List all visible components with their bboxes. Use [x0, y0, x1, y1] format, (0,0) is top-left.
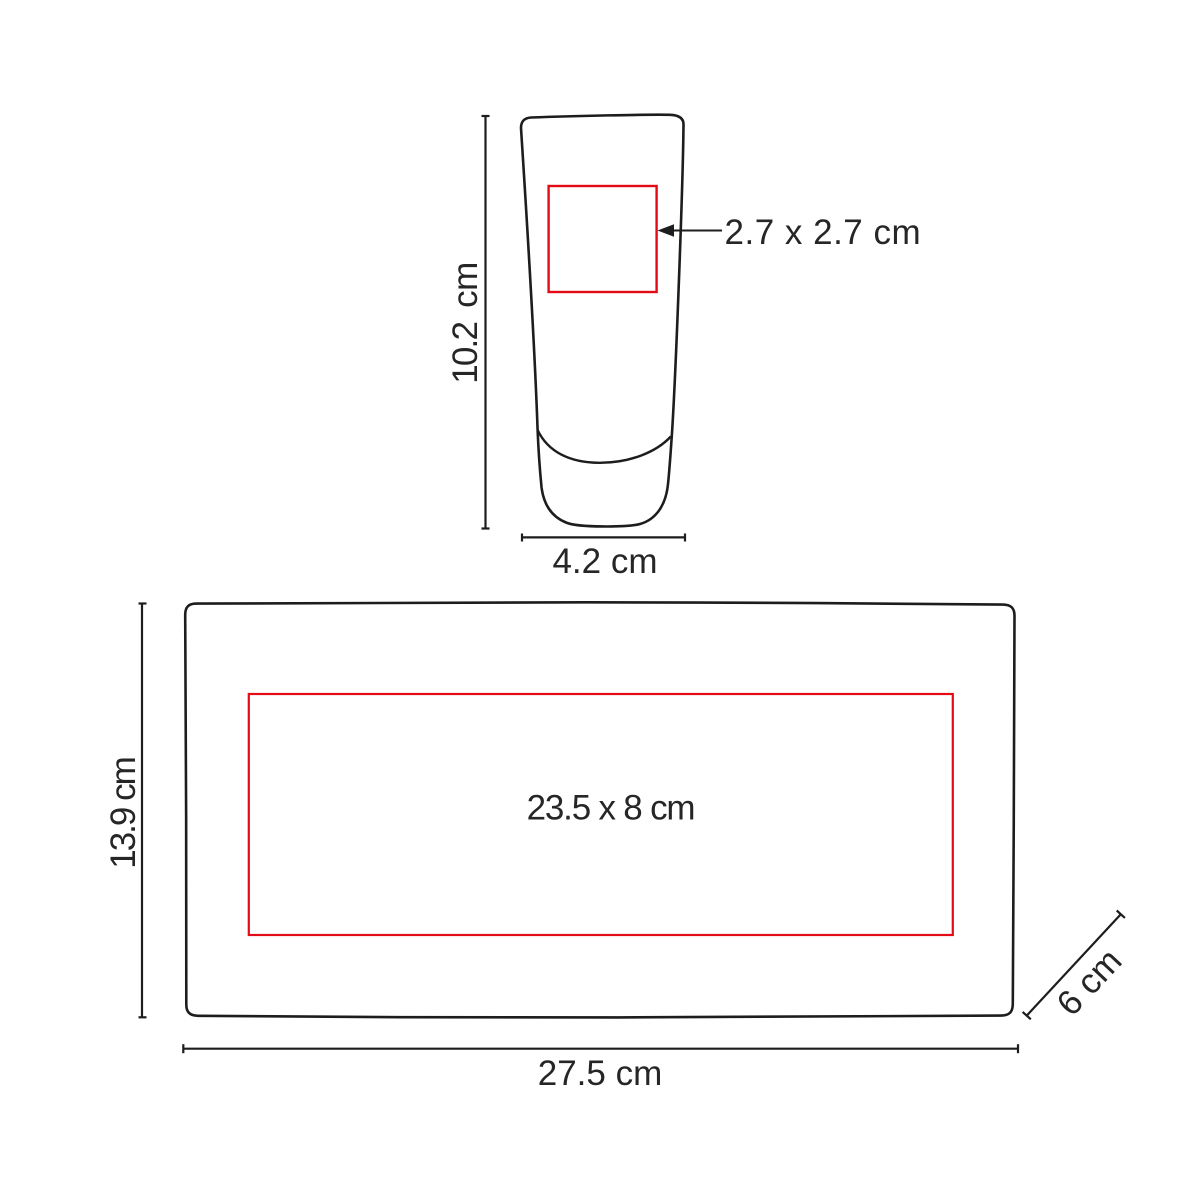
- svg-text:4.2 cm: 4.2 cm: [552, 542, 657, 581]
- svg-text:27.5 cm: 27.5 cm: [538, 1054, 663, 1093]
- svg-text:6 cm: 6 cm: [1049, 941, 1129, 1023]
- svg-text:23.5 x 8 cm: 23.5 x 8 cm: [527, 789, 695, 828]
- svg-text:13.9 cm: 13.9 cm: [104, 758, 143, 869]
- svg-text:10.2cm: 10.2cm: [446, 262, 485, 384]
- svg-text:2.7 x 2.7 cm: 2.7 x 2.7 cm: [725, 213, 922, 252]
